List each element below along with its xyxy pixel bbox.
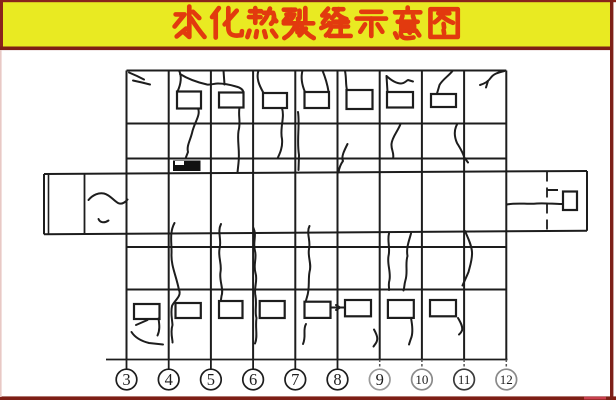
svg-text:8: 8 [333, 370, 341, 389]
svg-text:3: 3 [122, 370, 130, 389]
svg-text:9: 9 [376, 370, 384, 389]
svg-text:5: 5 [207, 370, 215, 389]
svg-text:12: 12 [500, 372, 513, 387]
svg-text:10: 10 [415, 372, 428, 387]
svg-text:4: 4 [165, 370, 173, 389]
svg-text:6: 6 [249, 370, 257, 389]
svg-text:7: 7 [291, 370, 299, 389]
svg-text:11: 11 [458, 372, 471, 387]
